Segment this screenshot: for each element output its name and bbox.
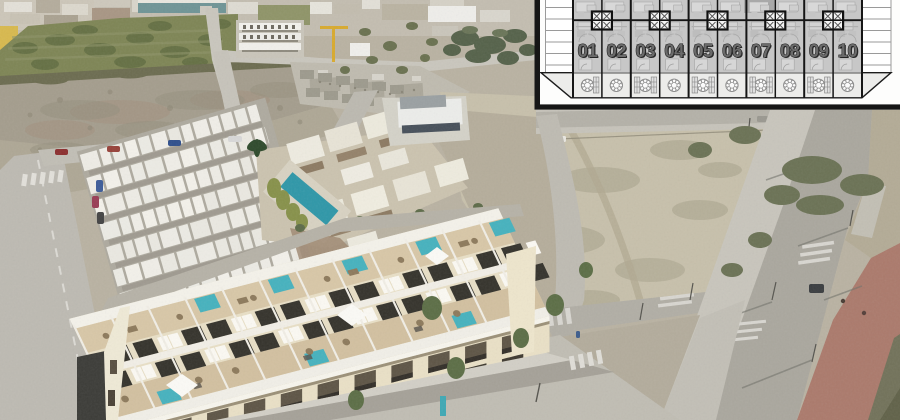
svg-text:03: 03 — [635, 40, 655, 61]
svg-text:06: 06 — [722, 40, 742, 61]
svg-text:02: 02 — [607, 40, 627, 61]
svg-text:09: 09 — [809, 40, 829, 61]
svg-text:07: 07 — [751, 40, 771, 61]
svg-text:08: 08 — [780, 40, 800, 61]
svg-text:01: 01 — [578, 40, 598, 61]
svg-text:05: 05 — [693, 40, 713, 61]
svg-text:04: 04 — [664, 40, 685, 61]
svg-text:10: 10 — [838, 40, 858, 61]
